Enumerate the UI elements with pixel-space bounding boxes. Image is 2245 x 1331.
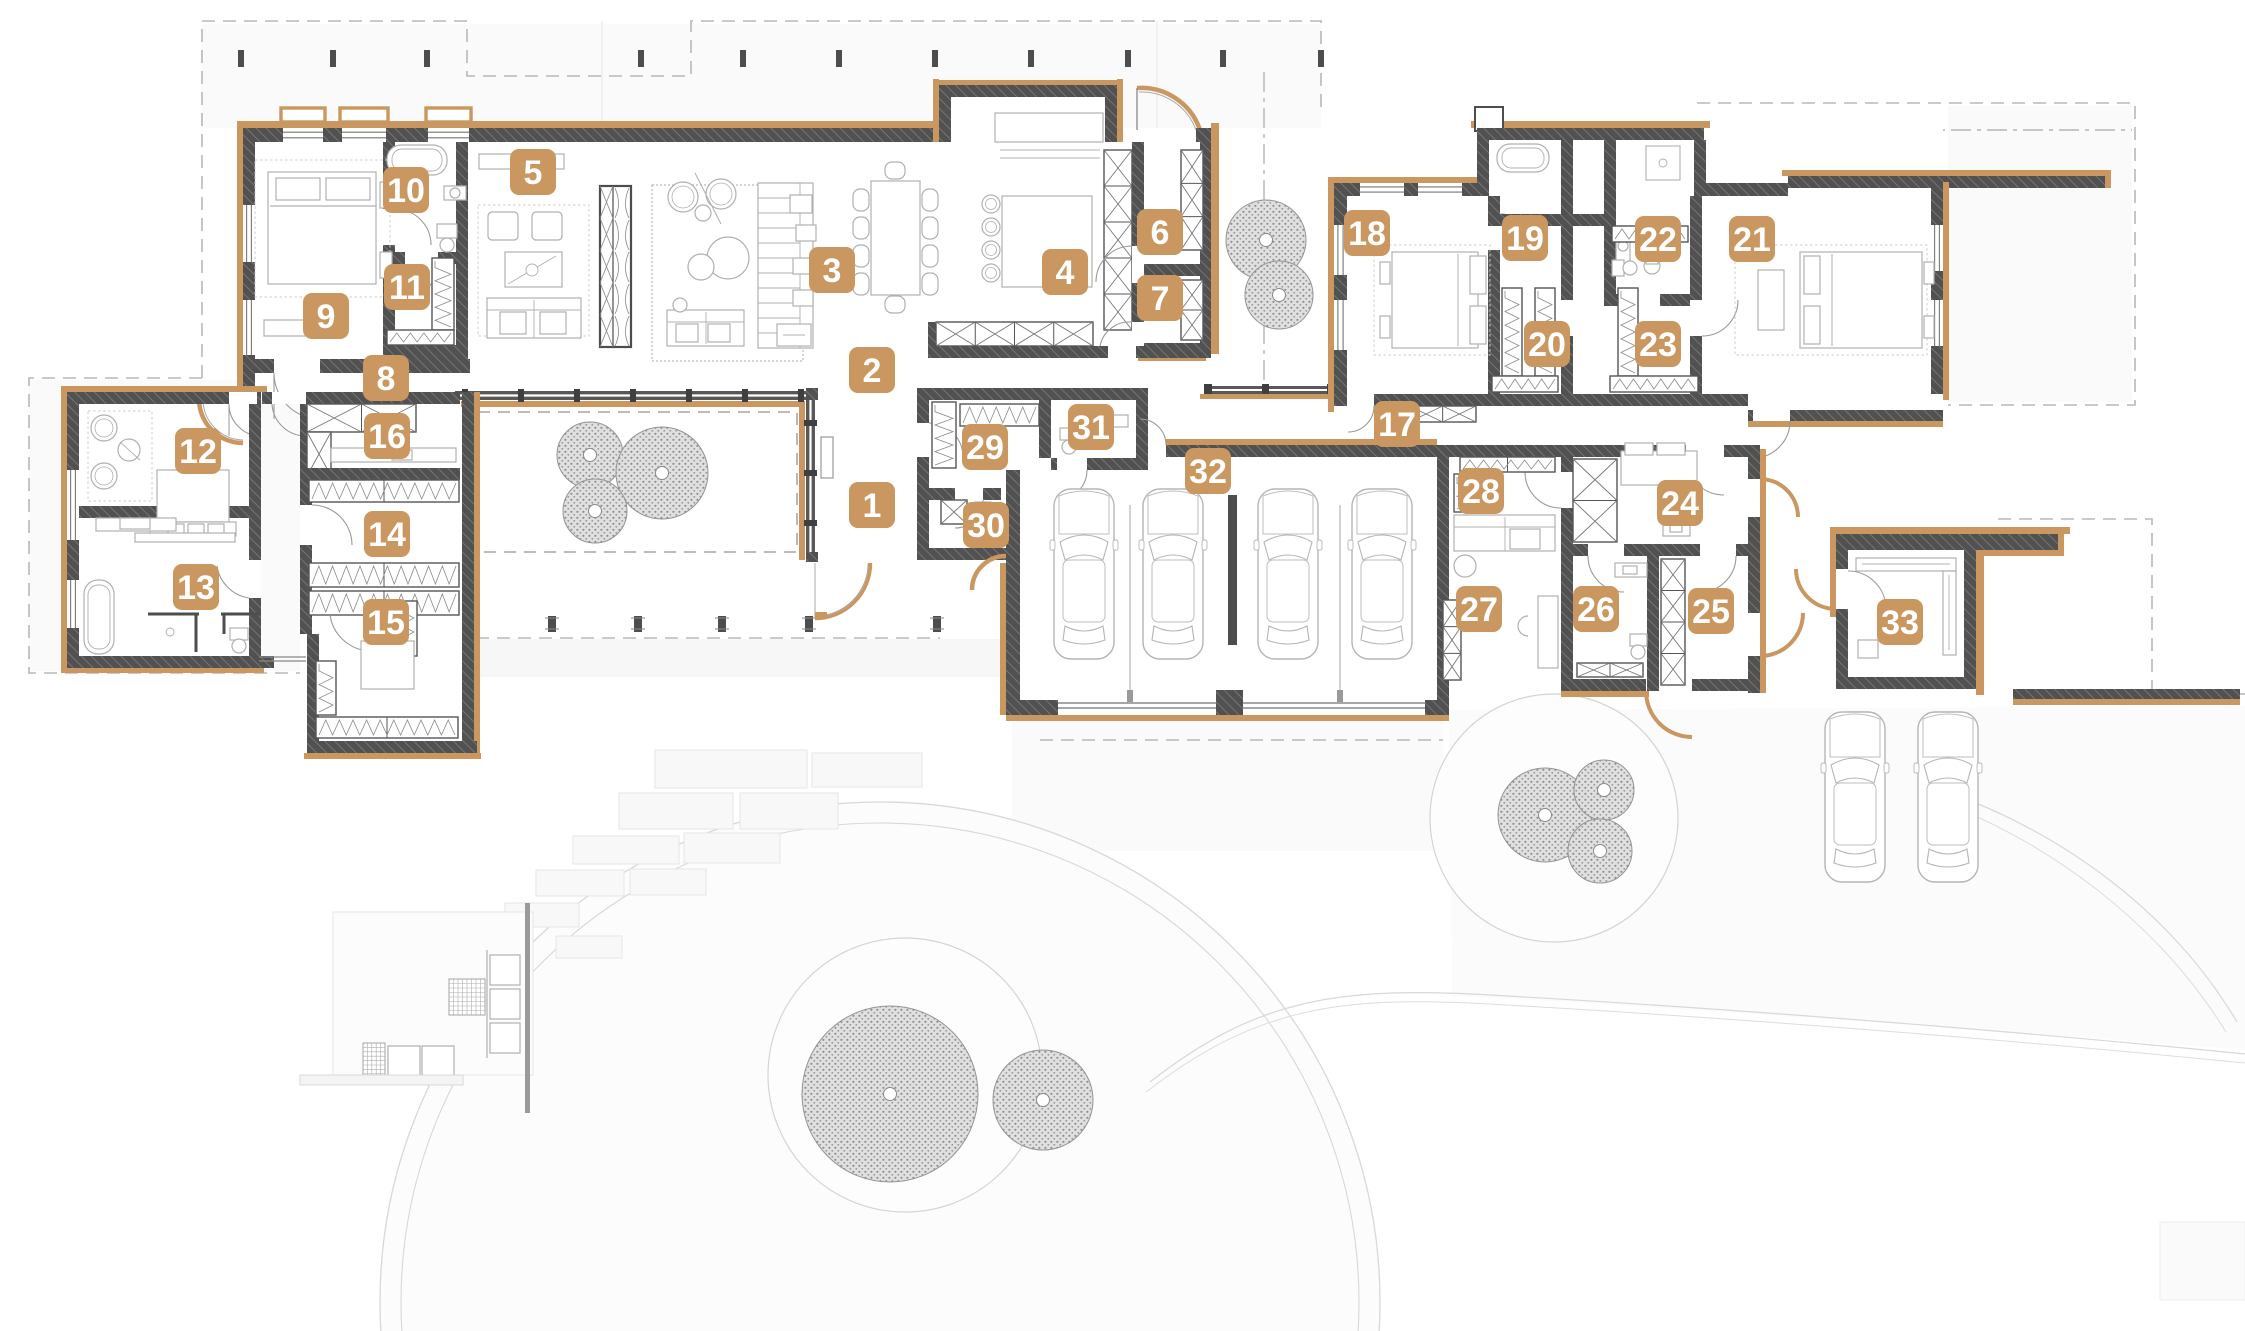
svg-text:6: 6 (1151, 214, 1170, 252)
svg-text:19: 19 (1506, 220, 1544, 258)
svg-text:17: 17 (1378, 406, 1416, 444)
svg-text:5: 5 (524, 154, 543, 192)
svg-text:3: 3 (823, 252, 842, 290)
svg-text:2: 2 (863, 352, 882, 390)
svg-text:30: 30 (967, 507, 1005, 545)
svg-text:14: 14 (368, 516, 406, 554)
svg-text:22: 22 (1639, 221, 1677, 259)
svg-text:25: 25 (1692, 593, 1730, 631)
svg-text:23: 23 (1639, 326, 1677, 364)
svg-text:11: 11 (389, 269, 425, 307)
svg-text:33: 33 (1881, 604, 1919, 642)
svg-text:1: 1 (863, 487, 882, 525)
svg-text:10: 10 (387, 172, 425, 210)
svg-text:18: 18 (1348, 215, 1386, 253)
svg-text:7: 7 (1151, 280, 1170, 318)
svg-text:29: 29 (966, 429, 1004, 467)
svg-text:20: 20 (1528, 326, 1566, 364)
svg-text:31: 31 (1072, 409, 1110, 447)
svg-text:24: 24 (1661, 485, 1699, 523)
svg-text:21: 21 (1733, 221, 1771, 259)
svg-text:8: 8 (377, 360, 396, 398)
svg-text:27: 27 (1460, 591, 1498, 629)
svg-text:13: 13 (177, 569, 215, 607)
svg-text:4: 4 (1056, 254, 1075, 292)
svg-text:16: 16 (368, 418, 406, 456)
svg-text:15: 15 (367, 604, 405, 642)
svg-text:26: 26 (1577, 591, 1615, 629)
svg-text:28: 28 (1462, 473, 1500, 511)
svg-text:12: 12 (179, 433, 217, 471)
svg-text:32: 32 (1189, 453, 1227, 491)
svg-text:9: 9 (317, 298, 336, 336)
